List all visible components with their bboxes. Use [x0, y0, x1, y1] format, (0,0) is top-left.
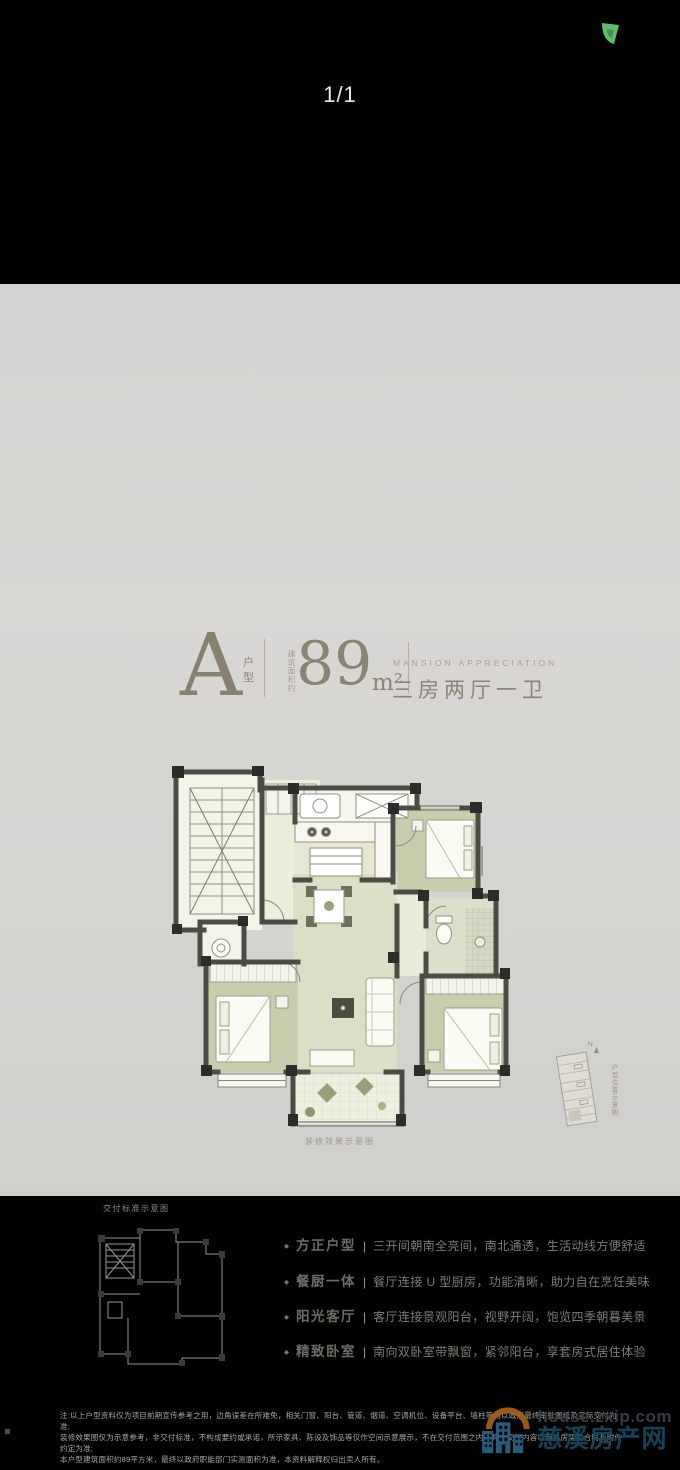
buildings-sun-logo-icon: [477, 1399, 533, 1461]
watermark-site-name: 慈溪房产网: [537, 1426, 672, 1453]
plan-caption: 装修效果示意图: [240, 1136, 440, 1147]
feature-divider: |: [363, 1275, 366, 1289]
delivery-standard-plan: [88, 1218, 238, 1370]
diamond-bullet-icon: ◆: [284, 1349, 289, 1356]
delivery-plan-caption: 交付标准示意图: [103, 1203, 170, 1214]
floorplan-flyer-card: A 户型 建筑面积约 89 m² MANSION APPRECIATION 三房…: [0, 284, 680, 1196]
feature-divider: |: [363, 1239, 366, 1253]
header-divider: [264, 639, 265, 697]
feature-description: 客厅连接景观阳台，视野开阔，饱览四季朝暮美景: [373, 1310, 646, 1324]
feature-divider: |: [363, 1345, 366, 1359]
area-value: 89: [296, 632, 372, 696]
feature-divider: |: [363, 1310, 366, 1324]
floor-plan-drawing: [160, 750, 520, 1142]
feature-row: ◆餐厨一体|餐厅连接 U 型厨房，功能清晰，助力自在烹饪美味: [284, 1270, 620, 1292]
unit-letter: A: [180, 620, 242, 712]
feature-description: 南向双卧室带飘窗，紧邻阳台，享套房式居住体验: [373, 1345, 646, 1359]
stray-dot: [5, 1429, 10, 1434]
watermark-url: house.zxip.com: [537, 1407, 672, 1426]
feature-title: 阳光客厅: [296, 1309, 356, 1324]
unit-label: 户型: [243, 656, 256, 686]
feature-row: ◆方正户型|三开间朝南全亮间，南北通透，生活动线方便舒适: [284, 1234, 620, 1256]
feature-row: ◆阳光客厅|客厅连接景观阳台，视野开阔，饱览四季朝暮美景: [284, 1305, 620, 1327]
diamond-bullet-icon: ◆: [284, 1314, 289, 1321]
feature-title: 精致卧室: [296, 1344, 356, 1359]
diamond-bullet-icon: ◆: [284, 1279, 289, 1286]
diamond-bullet-icon: ◆: [284, 1243, 289, 1250]
feature-title: 方正户型: [296, 1238, 356, 1253]
layout-description: 三房两厅一卫: [392, 674, 548, 704]
site-watermark: house.zxip.com 慈溪房产网: [477, 1397, 672, 1463]
tagline-english: MANSION APPRECIATION: [393, 658, 557, 668]
feature-description: 三开间朝南全亮间，南北通透，生活动线方便舒适: [373, 1239, 646, 1253]
position-diagram-caption: 户型位置示意图: [608, 1064, 618, 1117]
unit-position-diagram: [548, 1046, 606, 1132]
feature-row: ◆精致卧室|南向双卧室带飘窗，紧邻阳台，享套房式居住体验: [284, 1340, 620, 1362]
page-indicator: 1/1: [0, 82, 680, 108]
feature-title: 餐厨一体: [296, 1274, 356, 1289]
feature-description: 餐厅连接 U 型厨房，功能清晰，助力自在烹饪美味: [373, 1275, 650, 1289]
green-crop-icon[interactable]: [599, 21, 621, 46]
